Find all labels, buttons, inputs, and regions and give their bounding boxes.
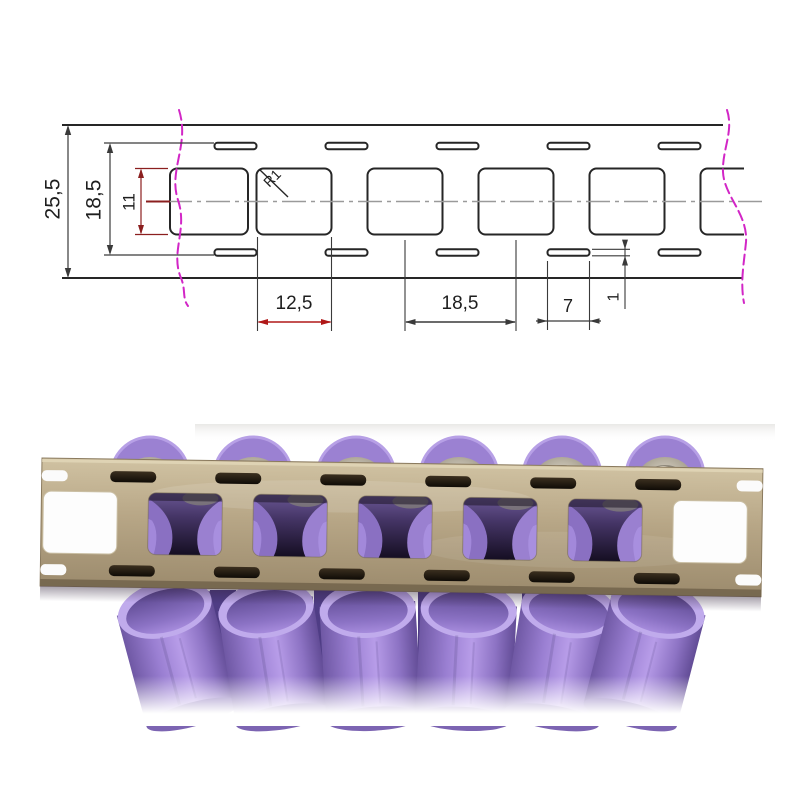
dim-label-hole-width: 12,5 xyxy=(276,293,313,314)
dimension-hole-pitch xyxy=(405,240,516,331)
break-line-left xyxy=(175,110,188,306)
nickel-strip xyxy=(40,458,763,612)
strip-slot-outline xyxy=(215,249,257,256)
dim-label-slot-thickness: 1 xyxy=(606,292,623,301)
strip-slot-outline xyxy=(659,249,701,256)
photo-bottom-fade xyxy=(20,676,780,726)
strip-hole xyxy=(463,495,538,560)
strip-hole-empty xyxy=(673,500,748,563)
strip-slot-outline xyxy=(215,143,257,150)
strip-slot-outline xyxy=(437,249,479,256)
dim-label-hole-pitch: 18,5 xyxy=(442,293,479,314)
strip-hole xyxy=(253,492,328,557)
strip-slot-outline xyxy=(659,143,701,150)
strip-slot-outline xyxy=(548,249,590,256)
dim-label-slot-length: 7 xyxy=(563,296,573,316)
photo-backdrop-edge xyxy=(195,424,775,442)
strip-hole xyxy=(358,494,433,559)
technical-drawing: 25,5 18,5 11 R1 12,5 xyxy=(42,110,776,331)
break-line-right xyxy=(723,110,746,303)
dim-label-total-width: 25,5 xyxy=(42,179,65,220)
dimension-total-width xyxy=(65,125,71,278)
strip-hole xyxy=(148,491,223,556)
dim-label-hole-height: 11 xyxy=(120,193,139,211)
strip-slot-outline xyxy=(326,143,368,150)
dim-label-slot-span: 18,5 xyxy=(83,180,106,221)
screenshot-root: 25,5 18,5 11 R1 12,5 xyxy=(0,0,800,800)
strip-hole-empty xyxy=(43,491,118,554)
composite-image: 25,5 18,5 11 R1 12,5 xyxy=(0,0,800,800)
dimension-hole-width xyxy=(258,237,332,331)
strip-hole xyxy=(568,497,643,562)
strip-slot-outline xyxy=(548,143,590,150)
strip-slot-outline xyxy=(437,143,479,150)
product-photo xyxy=(20,424,780,738)
